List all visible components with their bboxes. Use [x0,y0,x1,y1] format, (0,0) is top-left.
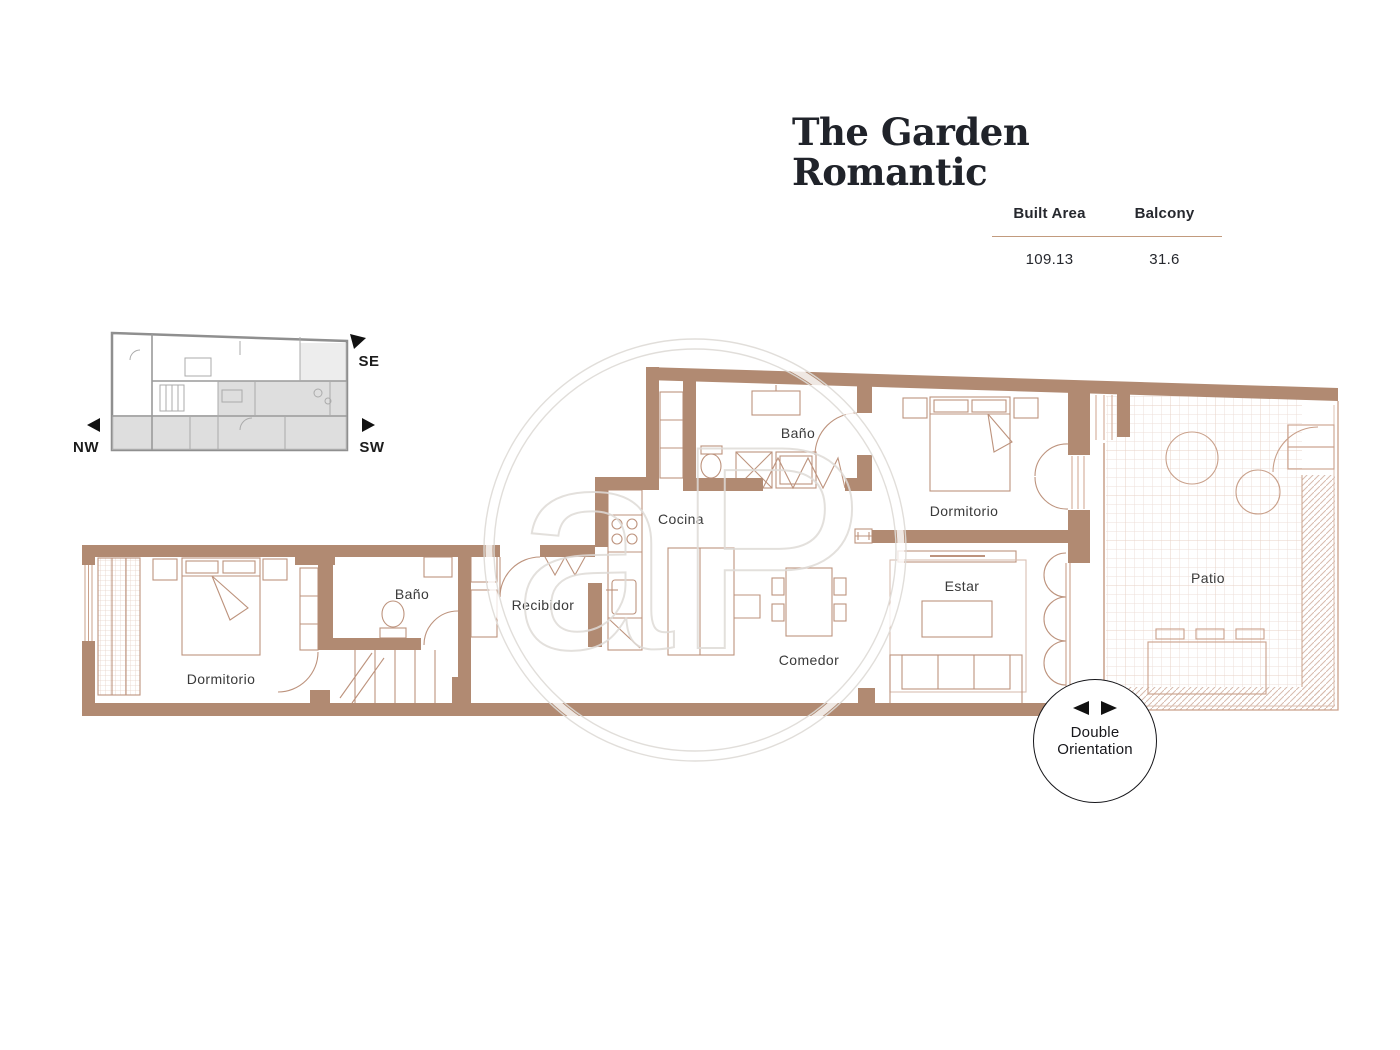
wardrobe-hatch [98,558,140,695]
wall [1117,393,1130,437]
closet-icon [300,568,318,650]
site-plan-thumbnail [112,333,347,450]
wall [335,545,458,557]
compass-sw-label: SW [359,439,385,456]
door-arc [278,652,318,692]
patio-hatch-strip [1302,475,1335,710]
floor-plan-canvas: SE NW SW [0,0,1400,1050]
stairs-icon [340,650,435,703]
nightstand-icon [263,559,287,580]
sofa-icon [890,655,1022,705]
bed-icon [182,558,260,655]
nightstand-icon [1014,398,1038,418]
nightstand-icon [153,559,177,580]
room-label-estar: Estar [945,578,980,594]
stats-divider [992,236,1222,237]
wall [82,545,295,557]
room-label-bano-left: Baño [395,586,429,602]
watermark: aP [484,339,906,761]
badge-line1: Double [1057,724,1133,741]
window [1072,456,1084,509]
wall [310,690,330,703]
badge-line2: Orientation [1057,741,1133,758]
floorplan-page: SE NW SW [0,0,1400,1050]
site-shaded-area [112,415,347,450]
wall [333,638,421,650]
wall [458,545,471,703]
compass-sw-arrow-icon [362,418,375,432]
compass-nw-arrow-icon [87,418,100,432]
door-arc [1035,444,1068,476]
nightstand-icon [903,398,927,418]
compass-se-arrow-icon [350,334,366,349]
page-title: The Garden Romantic [792,112,1029,192]
door-arc [1035,477,1068,509]
orientation-arrows-icon [1073,700,1117,716]
wall [318,557,333,650]
window [82,565,95,641]
stats-col1-header: Built Area [992,205,1107,222]
compass-se-label: SE [358,353,379,370]
stats-col2-header: Balcony [1107,205,1222,222]
badge-text: Double Orientation [1057,724,1133,758]
patio-surface [1104,396,1338,710]
site-shaded-area [300,343,347,381]
stats-col1-value: 109.13 [992,251,1107,268]
page-title-line1: The Garden [792,112,1029,152]
area-stats-table: Built Area Balcony 109.13 31.6 [992,205,1222,268]
coffee-table-icon [922,601,992,637]
toilet-icon [380,601,406,638]
folding-doors-to-patio [1044,553,1070,700]
bed-icon [930,397,1012,491]
compass-nw-label: NW [73,439,99,456]
wall [1068,389,1090,455]
room-label-patio: Patio [1191,570,1225,586]
watermark-letters: aP [513,386,868,710]
stats-col2-value: 31.6 [1107,251,1222,268]
room-label-dormitorio-left: Dormitorio [187,671,256,687]
double-orientation-badge: Double Orientation [1033,679,1157,803]
page-title-line2: Romantic [792,152,1029,192]
wall [1068,510,1090,563]
room-label-dormitorio-right: Dormitorio [930,503,999,519]
door-arc [424,611,458,645]
